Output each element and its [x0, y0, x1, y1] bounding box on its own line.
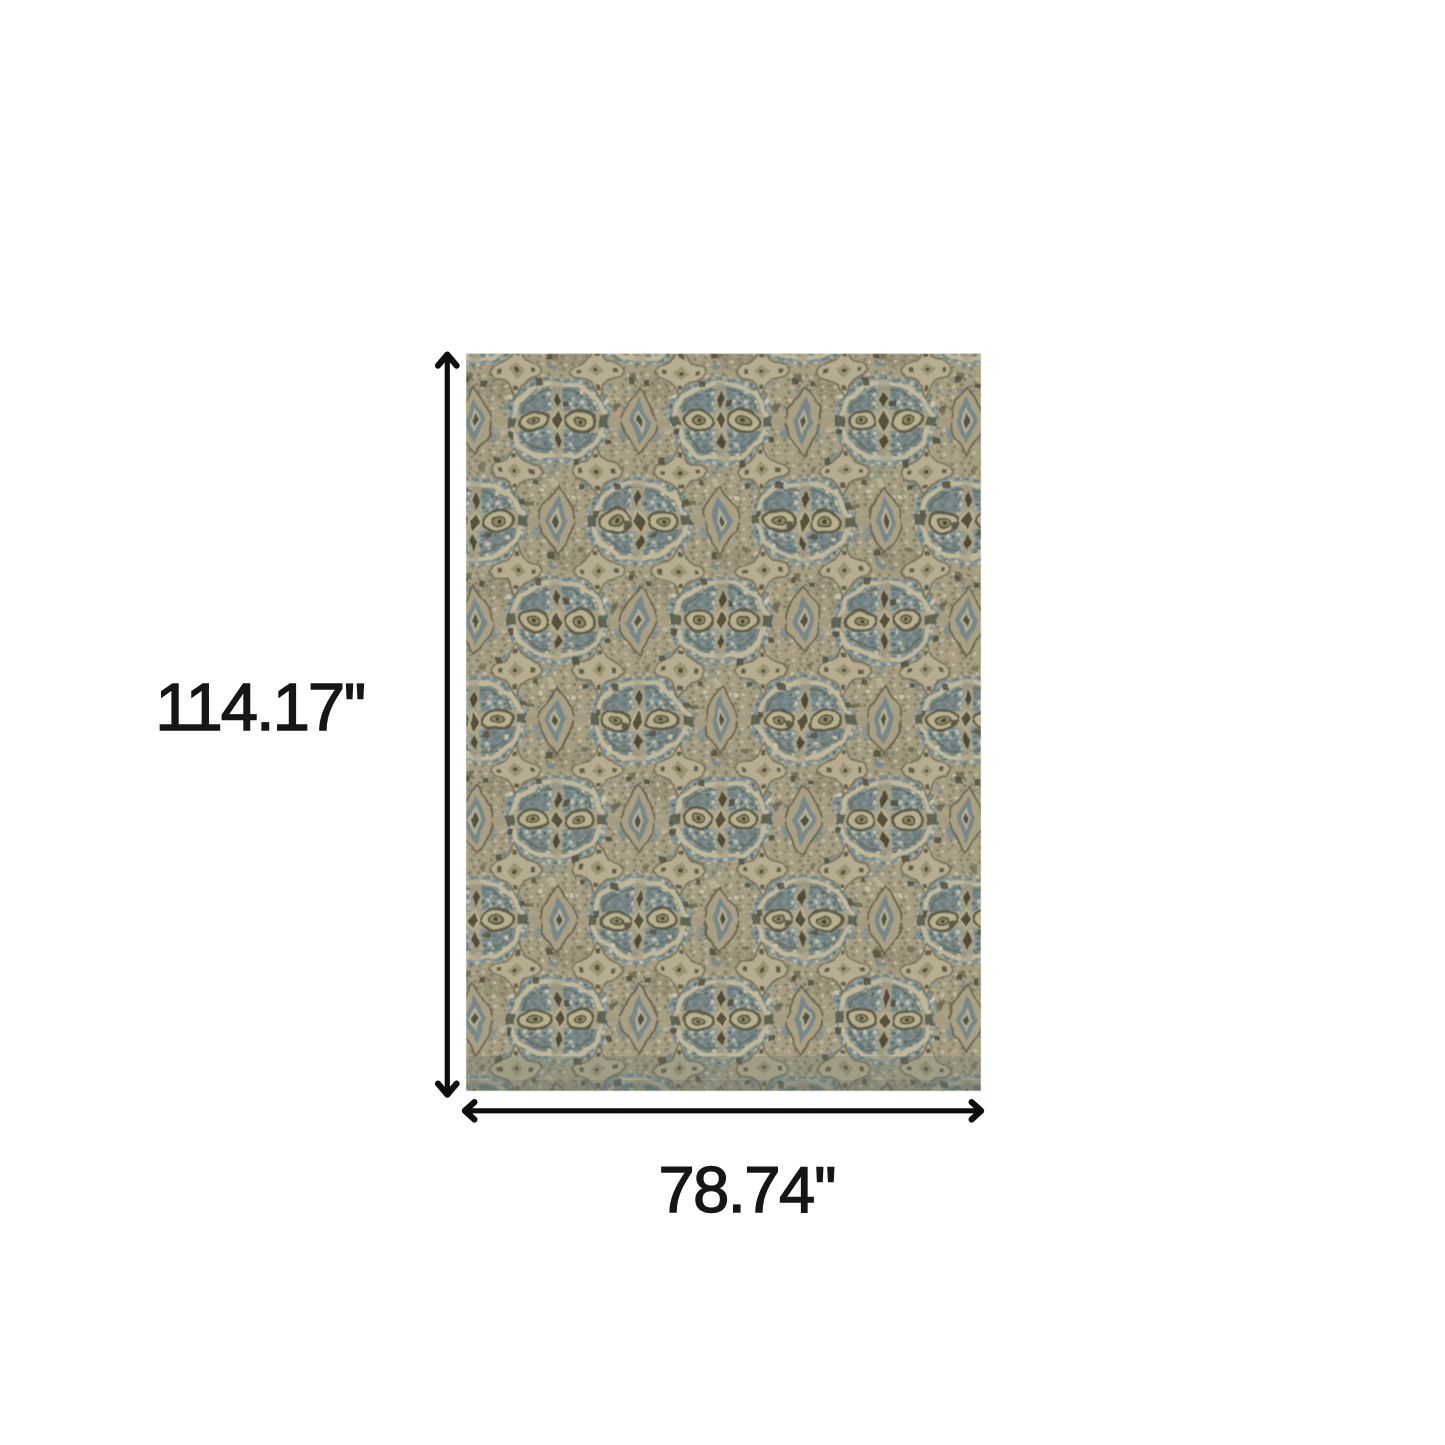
svg-text:78.74'': 78.74''	[659, 1153, 836, 1226]
svg-text:114.17'': 114.17''	[155, 670, 365, 745]
